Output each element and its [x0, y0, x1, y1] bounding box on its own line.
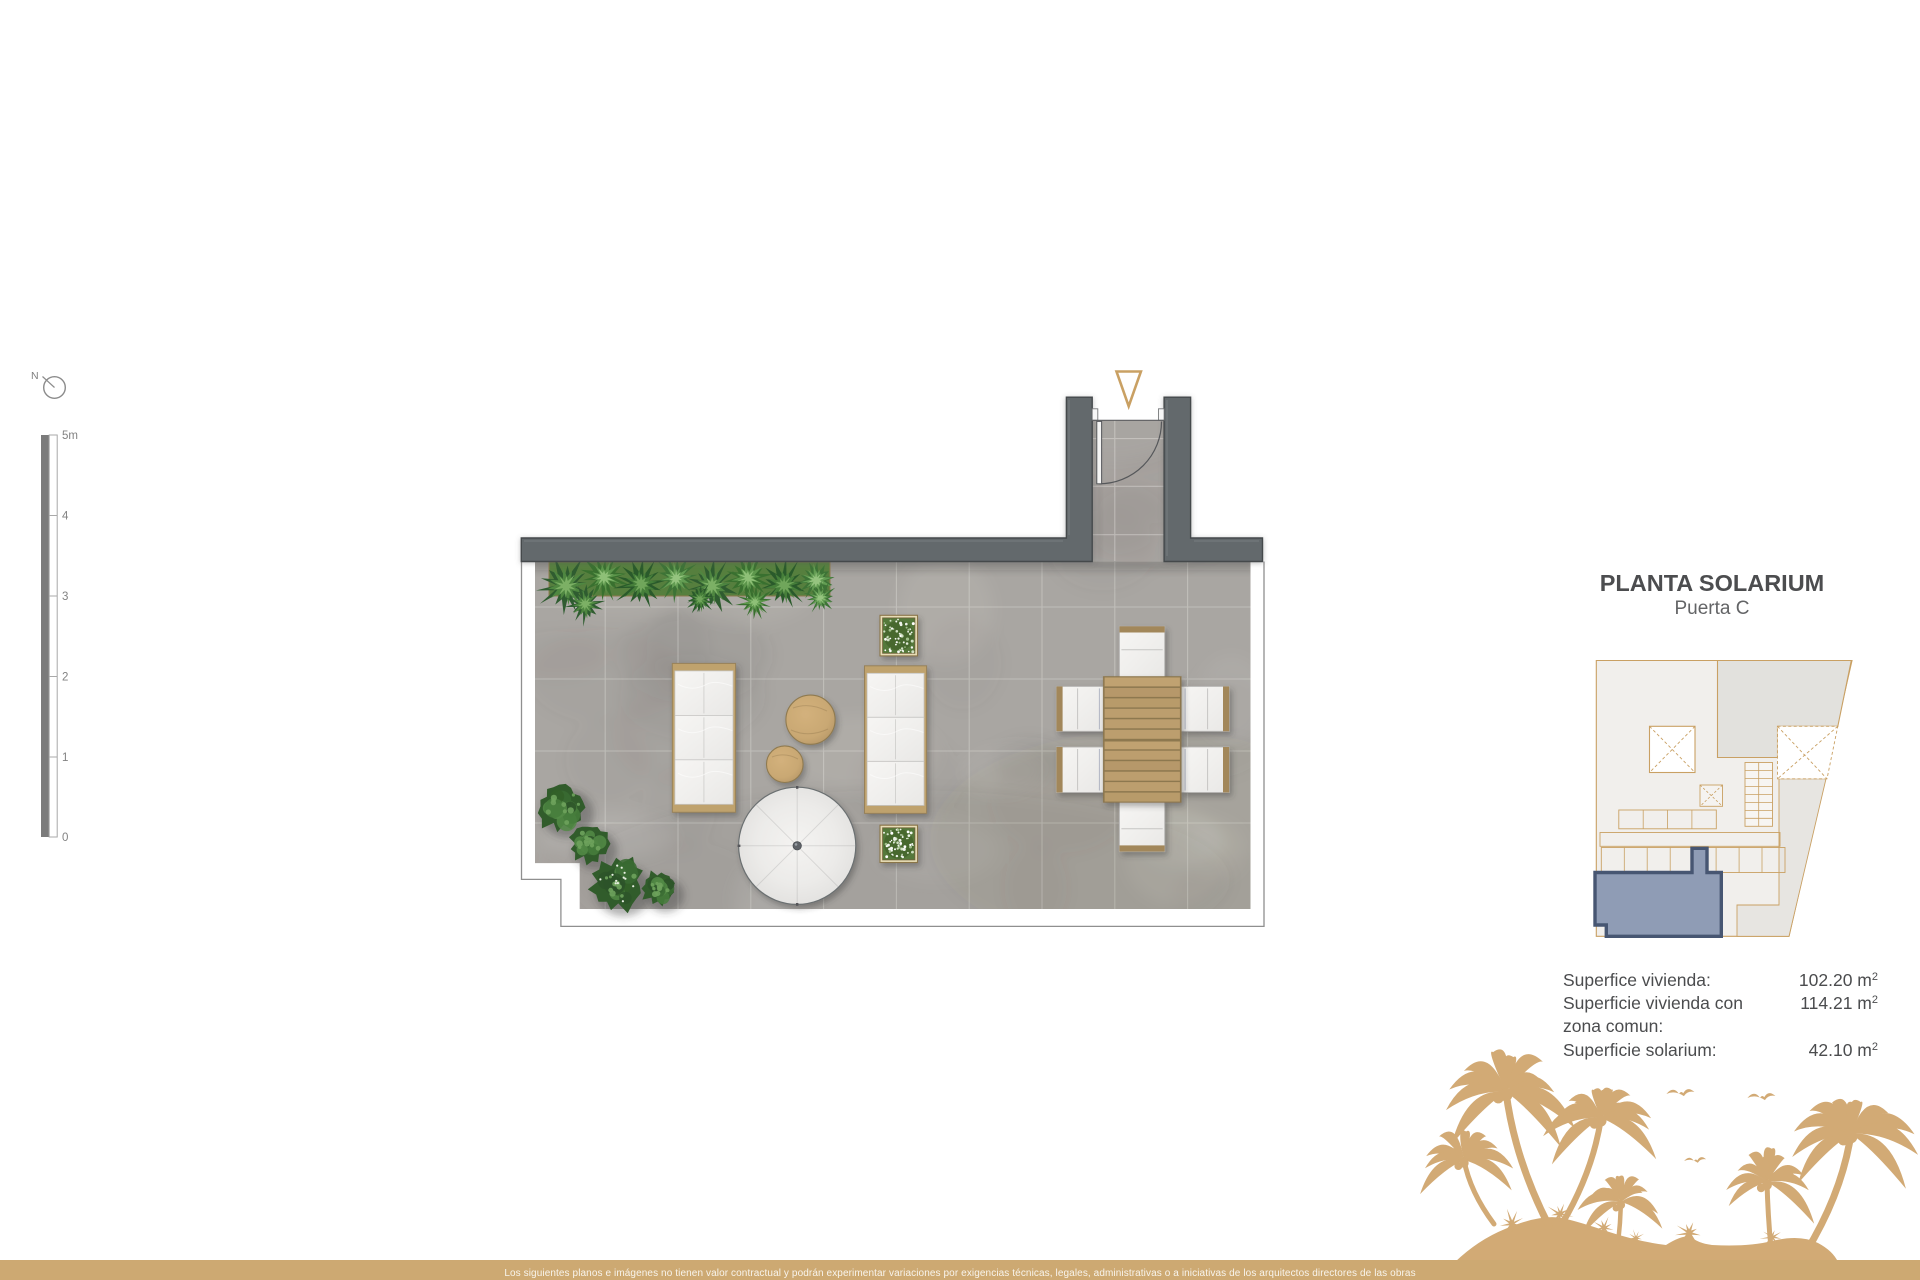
- svg-text:0: 0: [62, 832, 68, 844]
- svg-text:4: 4: [62, 511, 69, 523]
- svg-text:5m: 5m: [62, 430, 78, 442]
- svg-text:2: 2: [62, 672, 68, 684]
- svg-text:1: 1: [62, 752, 68, 764]
- svg-text:N: N: [31, 370, 39, 382]
- svg-text:3: 3: [62, 591, 68, 603]
